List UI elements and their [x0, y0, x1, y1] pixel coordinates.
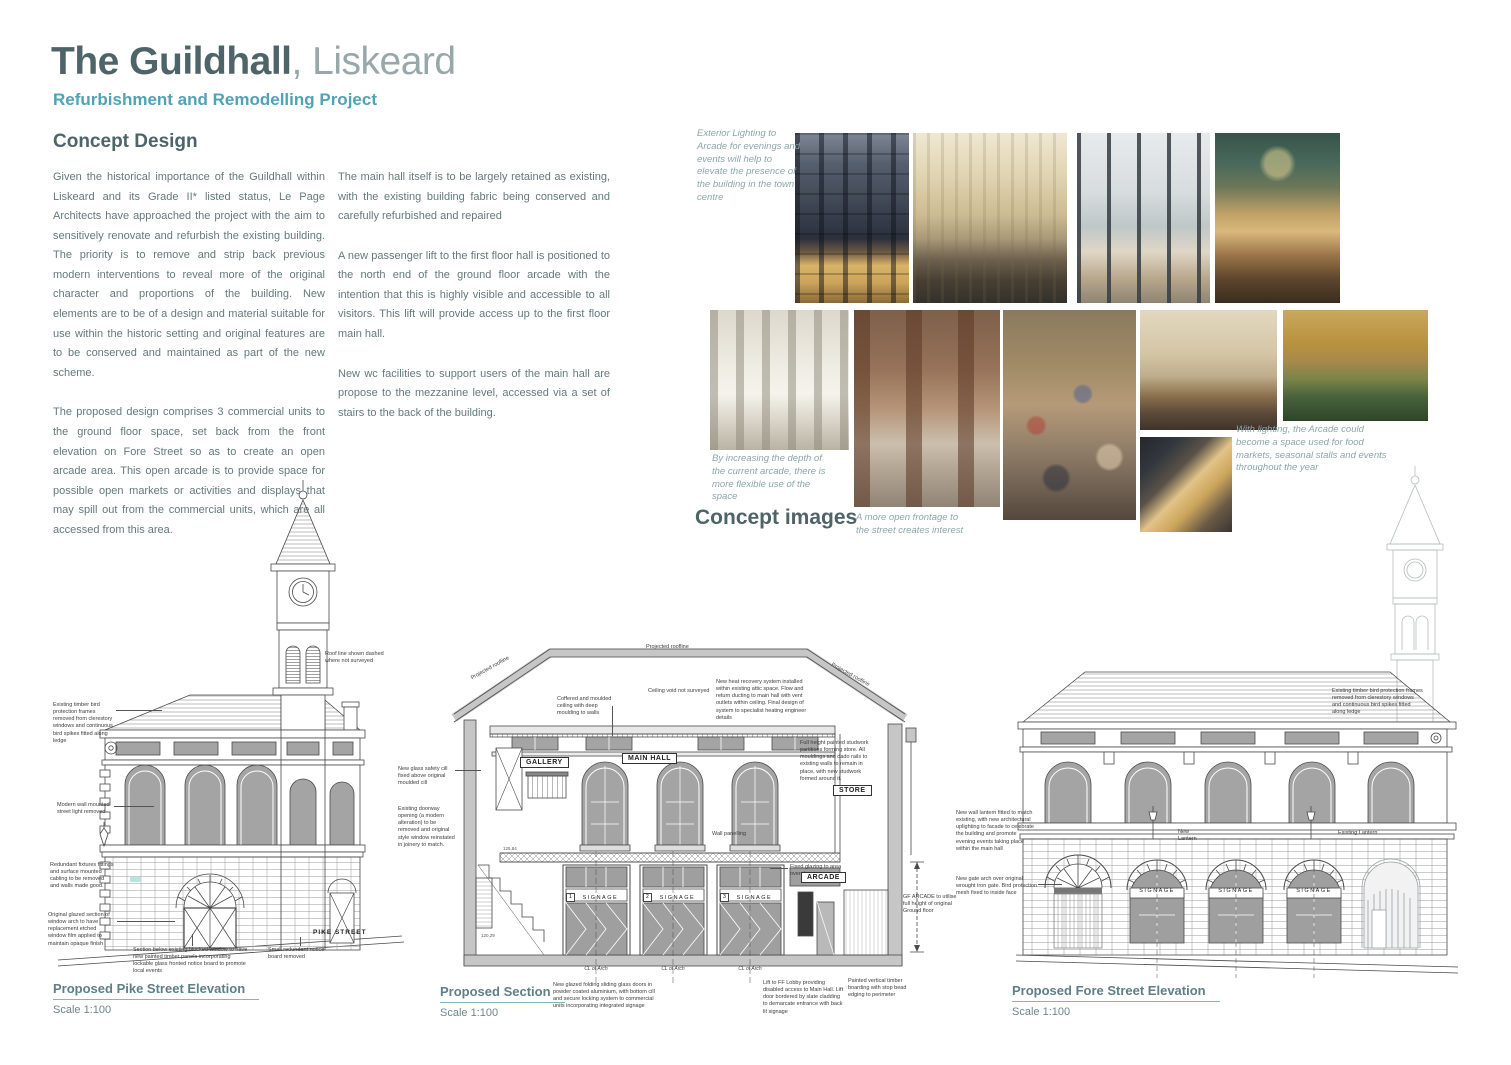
drawing-annotation: New gate arch over original wrought iron… [956, 876, 1038, 897]
caption-scale: Scale 1:100 [53, 1004, 259, 1016]
clock-tower [271, 480, 335, 730]
centerline-label: CL of Arch [659, 966, 687, 972]
unit-number: 2 [643, 893, 652, 902]
leader-line [192, 934, 193, 946]
drawing-annotation: Painted vertical timber boarding with st… [848, 978, 914, 999]
main-hall-windows [580, 762, 780, 851]
fore-street-elevation-drawing [1008, 460, 1468, 980]
signage-band: SIGNAGE [1130, 888, 1184, 894]
leader-line [770, 868, 788, 869]
page-title-light: , Liskeard [292, 40, 456, 83]
section-linework [454, 649, 924, 985]
signage-band: 1 SIGNAGE [566, 893, 624, 902]
drawing-annotation: Redundant fixtures fittings and surface … [50, 862, 114, 891]
open-arch-boarded [1362, 859, 1420, 948]
signage-band: 3 SIGNAGE [720, 893, 778, 902]
stairs [476, 865, 544, 955]
drawing-annotation: Existing timber bird protection frames r… [1332, 688, 1424, 717]
signage-label: SIGNAGE [1209, 888, 1263, 894]
drawing-annotation: New heat recovery system installed withi… [716, 679, 818, 722]
signage-band: SIGNAGE [1287, 888, 1341, 894]
leader-line [300, 937, 301, 946]
signage-label: SIGNAGE [654, 895, 701, 901]
caption-pike: Proposed Pike Street Elevation Scale 1:1… [53, 980, 259, 1016]
photo-covered-market-lanterns [1215, 133, 1340, 303]
concept-note-frontage: A more open frontage to the street creat… [856, 512, 968, 538]
level-marker: 125,84 [503, 846, 517, 851]
page-title: The Guildhall, Liskeard [51, 40, 456, 84]
leader-line [455, 770, 481, 771]
centerline-label: CL of Arch [736, 966, 764, 972]
drawing-annotation: Full height painted studwork partitions … [800, 740, 874, 783]
intro-paragraph: The main hall itself is to be largely re… [338, 168, 610, 227]
room-label-store: STORE [833, 785, 872, 796]
unit-number: 3 [720, 893, 729, 902]
drawing-annotation: New glazed folding sliding glass doors i… [553, 982, 657, 1011]
caption-title: Proposed Fore Street Elevation [1012, 983, 1220, 1002]
signage-label: SIGNAGE [1287, 888, 1341, 894]
room-label-gallery: GALLERY [520, 757, 569, 768]
drawing-annotation: New glass safety cill fixed above origin… [398, 766, 454, 787]
leader-line [1038, 884, 1062, 885]
fore-elevation-linework [1016, 466, 1458, 978]
project-subtitle: Refurbishment and Remodelling Project [53, 90, 377, 110]
concept-design-heading: Concept Design [53, 131, 198, 153]
page-title-bold: The Guildhall [51, 40, 292, 83]
caption-title: Proposed Section [440, 984, 565, 1003]
intro-column-2: The main hall itself is to be largely re… [338, 168, 610, 443]
intro-paragraph: New wc facilities to support users of th… [338, 365, 610, 424]
photo-arcade-columns [854, 310, 1000, 507]
street-label: PIKE STREET [313, 929, 367, 936]
caption-scale: Scale 1:100 [1012, 1006, 1220, 1018]
lantern-annotation: Existing Lantern [1338, 830, 1378, 837]
drawing-annotation: Roof line shown dashed where not surveye… [325, 651, 391, 665]
leader-line [117, 921, 175, 922]
intro-paragraph: A new passenger lift to the first floor … [338, 247, 610, 345]
drawing-annotation: Wall panelling [712, 831, 750, 838]
photo-arcade-facade-dusk [795, 133, 909, 303]
caption-scale: Scale 1:100 [440, 1007, 565, 1019]
roofline-label: Projected roofline [646, 644, 716, 651]
signage-label: SIGNAGE [731, 895, 778, 901]
drawing-annotation: Existing doorway opening (a modern alter… [398, 806, 456, 849]
concept-note-lighting: Exterior Lighting to Arcade for evenings… [697, 128, 801, 205]
leader-line [114, 806, 154, 807]
signage-label: SIGNAGE [1130, 888, 1184, 894]
centerline-label: CL of Arch [582, 966, 610, 972]
intro-paragraph: Given the historical importance of the G… [53, 168, 325, 383]
drawing-annotation: GF ARCADE to utilise full height of orig… [903, 894, 957, 915]
drawing-annotation: Section below existing blocked window to… [133, 947, 251, 976]
level-marker: 120,29 [481, 933, 495, 938]
unit-number: 1 [566, 893, 575, 902]
concept-note-depth: By increasing the depth of the current a… [712, 453, 830, 504]
room-label-arcade: ARCADE [801, 872, 846, 883]
photo-vaulted-market-hall [1283, 310, 1428, 421]
room-label-main-hall: MAIN HALL [622, 753, 677, 764]
drawing-annotation: Lift to FF Lobby providing disabled acce… [763, 980, 845, 1016]
caption-section: Proposed Section Scale 1:100 [440, 983, 565, 1019]
proposed-section-drawing [440, 640, 930, 1010]
photo-stone-vaulted-arcade [913, 133, 1067, 303]
drawing-annotation: Original glazed section of window arch t… [48, 912, 116, 948]
leader-line [612, 706, 613, 736]
caption-title: Proposed Pike Street Elevation [53, 981, 259, 1000]
signage-label: SIGNAGE [577, 895, 624, 901]
photo-glazed-shopfront-doors [1077, 133, 1210, 303]
arcade-shopfronts [1127, 860, 1344, 943]
photo-vaulted-bar [1140, 310, 1277, 430]
drawing-annotation: New wall lantern fitted to match existin… [956, 810, 1036, 853]
concept-images-heading: Concept images [695, 506, 857, 530]
drawing-annotation: Existing timber bird protection frames r… [53, 702, 115, 745]
lift [798, 892, 834, 955]
photo-long-colonnade [710, 310, 849, 450]
signage-band: SIGNAGE [1209, 888, 1263, 894]
leader-line [116, 710, 162, 711]
signage-band: 2 SIGNAGE [643, 893, 701, 902]
lantern-annotation: New Lantern [1178, 829, 1208, 843]
presentation-board: The Guildhall, Liskeard Refurbishment an… [0, 0, 1511, 1065]
caption-fore: Proposed Fore Street Elevation Scale 1:1… [1012, 982, 1220, 1018]
drawing-annotation: Small redundant notice board removed [268, 947, 330, 961]
drawing-annotation: Modern wall mounted street light removed [57, 802, 113, 816]
